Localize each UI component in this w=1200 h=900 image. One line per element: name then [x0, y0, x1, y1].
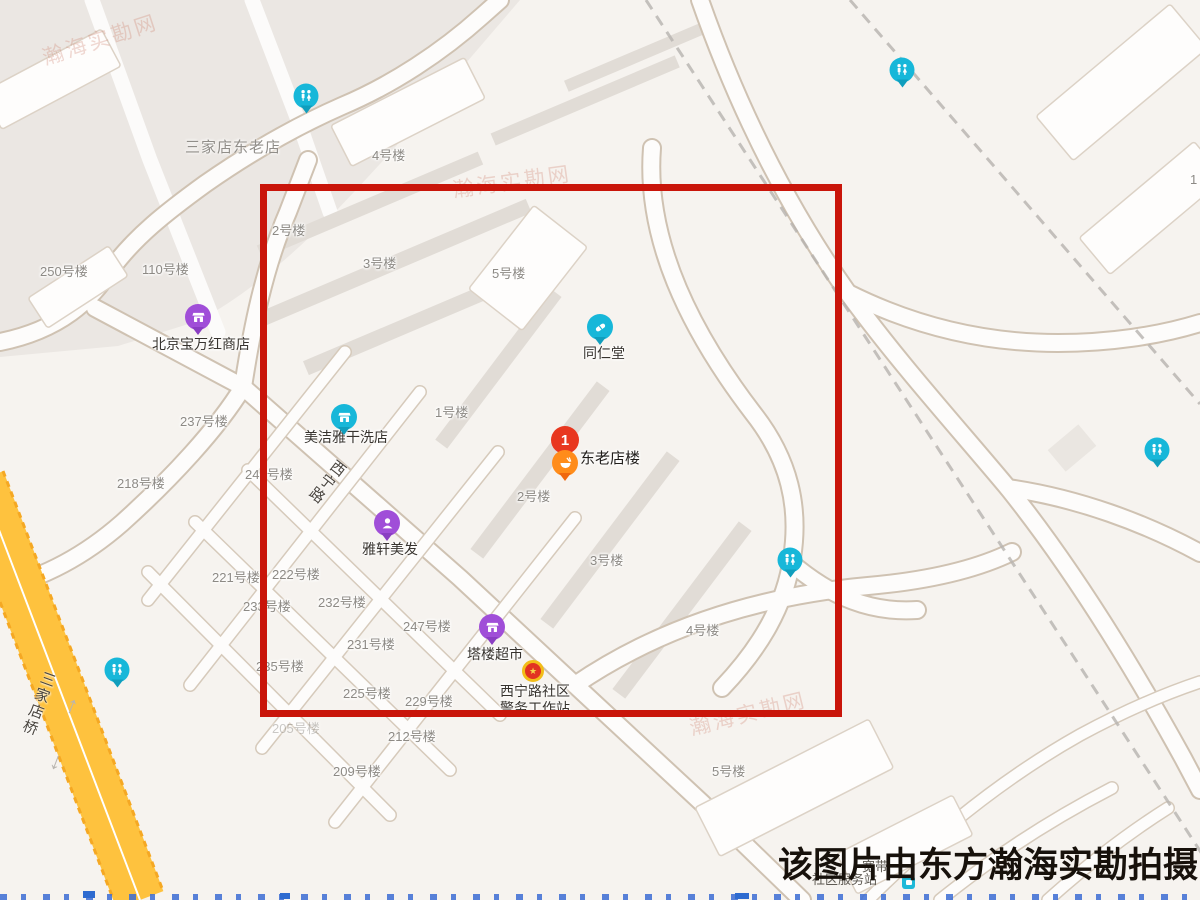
storefront-icon: [191, 310, 206, 325]
toilet-icon: [895, 63, 910, 78]
clipped-bottom-row: [0, 894, 1200, 900]
toilet-pin[interactable]: [778, 548, 803, 573]
beijing-baowanhong-store-pin[interactable]: [185, 304, 211, 330]
yaxuan-salon-pin[interactable]: [374, 510, 400, 536]
clipped-bottom-block: [280, 893, 290, 899]
xining-road-police-station-pin[interactable]: ★: [522, 660, 544, 682]
toilet-pin[interactable]: [1145, 438, 1170, 463]
pins-layer: 1★: [0, 0, 1200, 900]
donglaodianlou-pin[interactable]: [552, 450, 578, 476]
toilet-pin[interactable]: [890, 58, 915, 83]
tongrentang-pharmacy-pin[interactable]: [587, 314, 613, 340]
person-icon: [380, 516, 395, 531]
bowl-icon: [558, 456, 573, 471]
toilet-icon: [783, 553, 798, 568]
storefront-icon: [337, 410, 352, 425]
meijieya-drycleaner-pin[interactable]: [331, 404, 357, 430]
clipped-bottom-block: [735, 893, 749, 899]
toilet-icon: [1150, 443, 1165, 458]
photographer-watermark: 该图片由东方瀚海实勘拍摄: [778, 837, 1198, 888]
toilet-pin[interactable]: [294, 84, 319, 109]
toilet-icon: [110, 663, 125, 678]
clipped-bottom-block: [83, 891, 95, 898]
storefront-icon: [485, 620, 500, 635]
toilet-icon: [299, 89, 314, 104]
map-canvas[interactable]: 三家店东老店 250号楼110号楼4号楼2号楼3号楼5号楼237号楼218号楼2…: [0, 0, 1200, 900]
pill-icon: [593, 320, 608, 335]
toilet-pin[interactable]: [105, 658, 130, 683]
talou-supermarket-pin[interactable]: [479, 614, 505, 640]
